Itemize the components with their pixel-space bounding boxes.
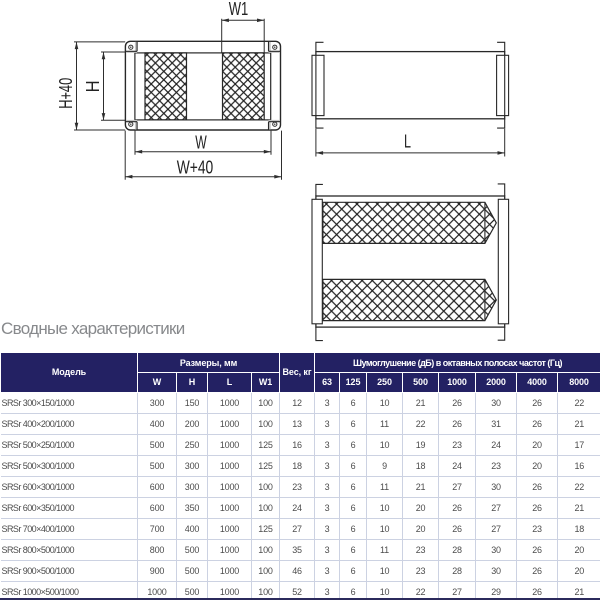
svg-text:L: L: [404, 132, 411, 152]
svg-text:W1: W1: [229, 0, 249, 19]
svg-text:H+40: H+40: [56, 78, 76, 109]
svg-text:W: W: [195, 133, 207, 153]
svg-text:H: H: [83, 80, 103, 92]
svg-text:W+40: W+40: [177, 157, 214, 177]
